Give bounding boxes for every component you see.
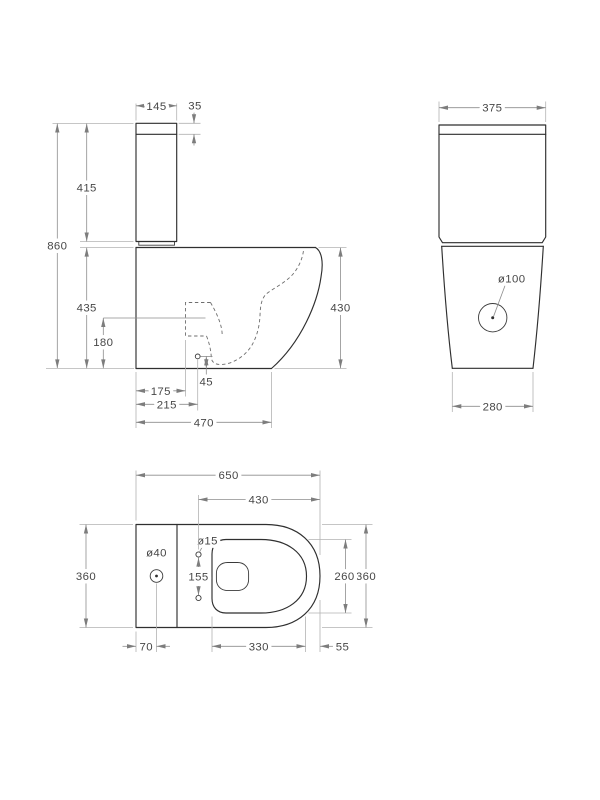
dim-overall-height: 860 [47,241,67,253]
dim-tank-width: 145 [146,101,166,113]
plan-tank-hole-center [155,575,158,578]
front-cistern-outline [439,125,546,243]
front-bowl-left-side [442,246,453,368]
dim-tank-hole-offset: 70 [140,641,153,653]
plan-view: ø40 ø15 155 650 430 360 360 260 70 [76,470,376,653]
side-cistern-outline [136,123,177,241]
dim-tank-height: 415 [77,183,97,195]
dim-overall-width-right: 360 [356,571,376,583]
dim-overall-width-left: 360 [76,571,96,583]
dim-base-width: 280 [483,401,503,413]
front-view: ø100 375 280 [439,102,546,414]
side-trap-inner-hidden-line [211,303,223,337]
side-trap-hidden-line [186,303,211,337]
dim-overall-length: 650 [218,470,238,482]
plan-rim-outline [212,540,307,614]
dim-trap-height: 180 [93,337,113,349]
side-outlet-point [195,354,200,359]
dim-rim-length: 430 [248,495,268,507]
dim-outlet-diameter: ø100 [498,274,526,286]
dim-front-tank-width: 375 [482,103,502,115]
plan-flush-opening [216,563,248,591]
dim-bowl-height: 435 [77,303,97,315]
toilet-dimension-drawing: 145 35 415 860 435 180 430 45 175 [0,0,600,800]
dim-seat-hole-spacing: 155 [188,572,208,584]
side-bowl-front-curve [272,248,323,369]
dim-rim-width: 260 [334,571,354,583]
ext-lines-650 [136,471,320,556]
dim-seat-hole-diameter: ø15 [197,536,218,548]
technical-drawing-page: 145 35 415 860 435 180 430 45 175 [0,0,600,800]
plan-seat-hole-top [196,552,201,557]
dim-lid-height: 35 [188,101,201,113]
front-outlet-leader [494,284,506,317]
dim-rim-span: 330 [249,641,269,653]
side-trap-sump-hidden-line [207,251,304,365]
dim-trap-offset: 175 [151,386,171,398]
ext-lines-35 [179,123,201,134]
front-bowl-right-side [533,246,543,368]
dim-tank-hole-diameter: ø40 [146,548,167,560]
dim-outlet-offset: 215 [157,399,177,411]
side-view: 145 35 415 860 435 180 430 45 175 [46,101,351,430]
ext-lines-bottom-plan [136,584,320,653]
dim-outlet-drop: 45 [200,377,213,389]
dim-bowl-front-height: 430 [330,303,350,315]
front-outlet-center-dot [491,316,494,319]
dim-overall-depth: 470 [194,417,214,429]
plan-seat-hole-bottom [196,595,201,600]
dim-front-overhang: 55 [336,641,349,653]
